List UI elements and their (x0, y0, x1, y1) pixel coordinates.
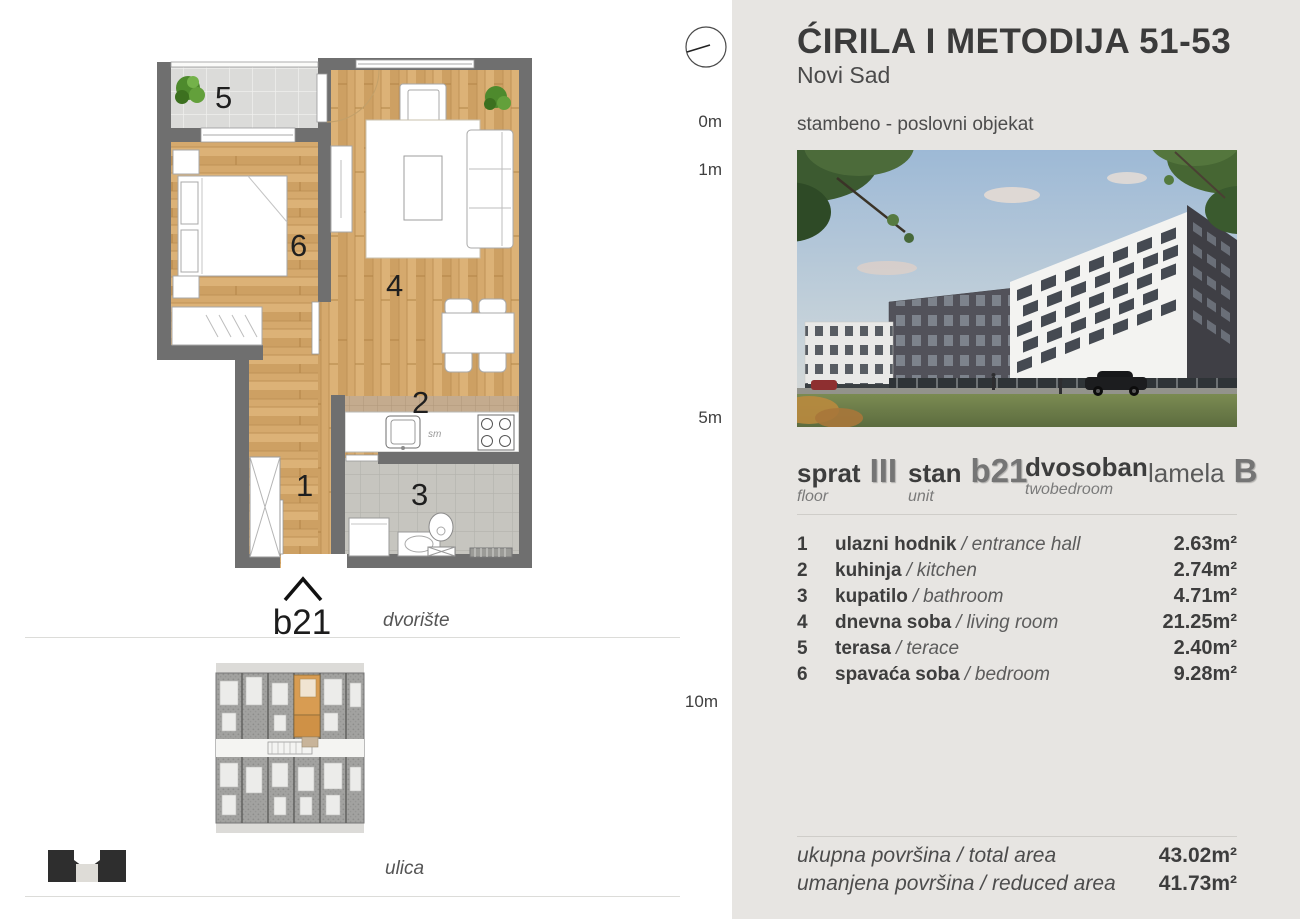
divider-unit-info (797, 514, 1237, 515)
reduced-area-label: umanjena površina / reduced area (797, 872, 1116, 896)
unit-info-row: spratIII floor stanb21 unit dvosoban two… (732, 452, 1300, 512)
ruler-label-5m: 5m (686, 408, 722, 428)
ruler-label-1m: 1m (686, 160, 722, 180)
divider-totals (797, 836, 1237, 837)
unit-info-floor: spratIII floor (797, 452, 897, 506)
unit-sublabel: unit (908, 488, 1027, 506)
room-name-en: terace (906, 638, 959, 660)
ruler-label-10m: 10m (682, 692, 718, 712)
room-name: kuhinja (835, 560, 902, 582)
floor-plan: sm 5 6 4 2 3 1 b2 (140, 55, 545, 640)
reduced-area-value: 41.73m² (1159, 872, 1237, 896)
room-number: 6 (797, 664, 835, 686)
plan-unit-label: b21 (273, 603, 331, 640)
building-render-photo (797, 150, 1237, 427)
floor-value: III (870, 452, 898, 489)
unit-info-unit: stanb21 unit (908, 452, 1027, 506)
room-row-5: 5terasa/terace2.40m² (797, 637, 1237, 663)
room-name: dnevna soba (835, 612, 951, 634)
info-panel: ĆIRILA I METODIJA 51-53 Novi Sad stamben… (732, 0, 1300, 919)
room-name-en: living room (966, 612, 1058, 634)
key-plan-highlighted-unit (294, 675, 320, 747)
bedroom-window (201, 128, 295, 142)
plan-room-3: 3 (411, 477, 428, 512)
room-name: ulazni hodnik (835, 534, 956, 556)
unit-label: stan (908, 458, 961, 488)
room-row-2: 2kuhinja/kitchen2.74m² (797, 559, 1237, 585)
total-area-value: 43.02m² (1159, 844, 1237, 868)
unit-value: b21 (970, 452, 1027, 489)
room-name-en: bedroom (975, 664, 1050, 686)
room-area: 2.63m² (1174, 533, 1237, 556)
room-number: 4 (797, 612, 835, 634)
floor-label: sprat (797, 458, 861, 488)
hall-wardrobe (250, 457, 280, 557)
type-label: dvosoban (1025, 452, 1148, 482)
unit-info-type: dvosoban twobedroom (1025, 452, 1148, 499)
room-area: 2.74m² (1174, 559, 1237, 582)
room-name-en: bathroom (923, 586, 1003, 608)
room-separator: / (961, 534, 966, 556)
room-row-1: 1ulazni hodnik/entrance hall2.63m² (797, 533, 1237, 559)
floor-sublabel: floor (797, 488, 897, 506)
street-label: ulica (385, 858, 424, 880)
plan-room-1: 1 (296, 468, 313, 503)
room-list: 1ulazni hodnik/entrance hall2.63m² 2kuhi… (797, 533, 1237, 689)
page-title: ĆIRILA I METODIJA 51-53 (797, 22, 1231, 62)
room-separator: / (965, 664, 970, 686)
room-name-en: kitchen (917, 560, 977, 582)
total-area-label: ukupna površina / total area (797, 844, 1056, 868)
room-name: kupatilo (835, 586, 908, 608)
room-number: 5 (797, 638, 835, 660)
room-name: terasa (835, 638, 891, 660)
room-separator: / (913, 586, 918, 608)
key-plan (212, 663, 368, 833)
courtyard-label: dvorište (383, 610, 450, 632)
entry-opening (281, 554, 347, 568)
entry-arrow-icon (285, 579, 321, 600)
unit-info-lamela: lamelaB (1148, 452, 1257, 490)
plan-room-4: 4 (386, 268, 403, 303)
living-window (356, 60, 474, 68)
totals-block: ukupna površina / total area 43.02m² uma… (797, 844, 1237, 900)
kitchen-splash (345, 396, 519, 412)
lamela-value: B (1234, 452, 1258, 489)
room-row-3: 3kupatilo/bathroom4.71m² (797, 585, 1237, 611)
terrace-rail (171, 62, 318, 67)
room-name-en: entrance hall (972, 534, 1081, 556)
plan-room-6: 6 (290, 228, 307, 263)
room-area: 9.28m² (1174, 663, 1237, 686)
lamela-label: lamela (1148, 458, 1225, 488)
room-row-4: 4dnevna soba/living room21.25m² (797, 611, 1237, 637)
room-separator: / (956, 612, 961, 634)
city-subtitle: Novi Sad (797, 62, 890, 89)
divider-top (25, 637, 680, 638)
room-area: 4.71m² (1174, 585, 1237, 608)
balcony-door (317, 74, 327, 122)
ruler-label-0m: 0m (686, 112, 722, 132)
reduced-area-row: umanjena površina / reduced area 41.73m² (797, 872, 1237, 900)
street-section-icon (48, 850, 126, 882)
room-area: 2.40m² (1174, 637, 1237, 660)
kitchen-sink-tag: sm (428, 429, 441, 440)
brochure-page: 0m 1m 5m 10m (0, 0, 1300, 919)
room-separator: / (896, 638, 901, 660)
room-row-6: 6spavaća soba/bedroom9.28m² (797, 663, 1237, 689)
divider-bottom (25, 896, 680, 897)
room-separator: / (907, 560, 912, 582)
compass-icon (684, 25, 728, 69)
room-number: 1 (797, 534, 835, 556)
room-number: 3 (797, 586, 835, 608)
type-sublabel: twobedroom (1025, 481, 1148, 499)
room-name: spavaća soba (835, 664, 960, 686)
bathroom-door (346, 455, 378, 461)
bedroom-door (312, 302, 319, 354)
room-area: 21.25m² (1163, 611, 1238, 634)
room-number: 2 (797, 560, 835, 582)
plan-room-5: 5 (215, 80, 232, 115)
building-type: stambeno - poslovni objekat (797, 114, 1034, 136)
plan-room-2: 2 (412, 385, 429, 420)
total-area-row: ukupna površina / total area 43.02m² (797, 844, 1237, 872)
